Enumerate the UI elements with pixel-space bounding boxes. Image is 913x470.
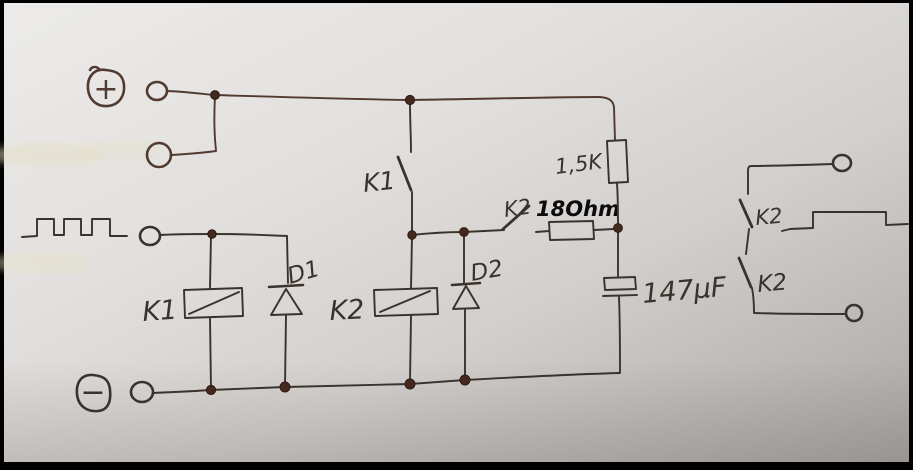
label-k2-out-bottom: K2 [756, 269, 788, 297]
junction-dot [614, 224, 623, 233]
label-k2-out-top: K2 [754, 204, 783, 230]
wire-input [160, 234, 211, 235]
plus-sign: + [93, 72, 118, 107]
label-k2-contact: K2 [502, 194, 532, 222]
label-k1-contact: K1 [362, 166, 397, 198]
wire-k1-contact-top [410, 101, 411, 152]
wire-k1-coil-top [210, 235, 211, 288]
paper-smudge [80, 140, 164, 160]
minus-sign: − [80, 375, 105, 410]
junction-dot [460, 375, 470, 385]
junction-dot [408, 231, 416, 239]
junction-dot [405, 95, 414, 104]
wire-k2-coil-top [411, 236, 412, 288]
minus-terminal-symbol: − [77, 375, 110, 411]
label-r-charge-value: 18Ohm [536, 197, 620, 221]
wire-k1-coil-bottom [210, 318, 211, 389]
junction-dot [208, 230, 216, 238]
circuit-photo: + K1 D1 K1 K2 D2 K2 18Oh [0, 0, 913, 470]
cap-bottom-plate [603, 295, 637, 296]
wire-d1-bottom [285, 315, 286, 386]
label-d2: D2 [469, 256, 505, 287]
label-k2-coil: K2 [329, 294, 365, 327]
junction-dot [211, 91, 220, 100]
junction-dot [460, 228, 469, 237]
junction-dot [206, 385, 215, 394]
wire-r-series-bottom [617, 183, 618, 227]
label-k1-coil: K1 [141, 295, 178, 328]
wire-into-r-charge [536, 231, 549, 232]
wire-out-r-charge [594, 229, 614, 230]
junction-dot [280, 382, 290, 392]
photo-frame: + K1 D1 K1 K2 D2 K2 18Oh [0, 0, 913, 470]
wire-cap-bottom [619, 297, 620, 372]
wire-k2-coil-bottom [410, 316, 411, 382]
junction-dot [405, 379, 415, 389]
